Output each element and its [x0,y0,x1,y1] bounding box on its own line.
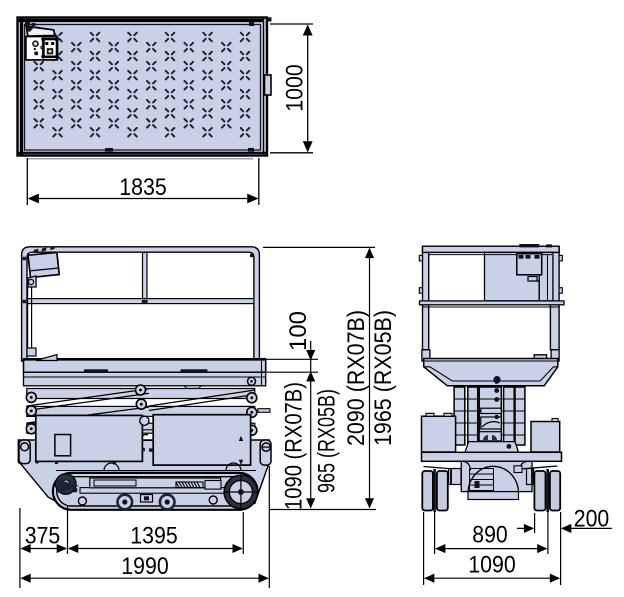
svg-text:890: 890 [472,522,508,549]
svg-text:965 (RX05B): 965 (RX05B) [314,389,341,493]
svg-text:1090: 1090 [468,552,516,579]
svg-text:1000: 1000 [282,64,309,112]
svg-text:375: 375 [25,523,61,550]
svg-text:200: 200 [574,505,610,532]
svg-text:1835: 1835 [119,174,167,201]
svg-text:1990: 1990 [121,553,169,580]
svg-text:1090 (RX07B): 1090 (RX07B) [281,382,308,510]
svg-text:1965 (RX05B): 1965 (RX05B) [370,310,397,446]
svg-text:100: 100 [285,311,312,351]
svg-text:1395: 1395 [130,523,178,550]
svg-text:2090 (RX07B): 2090 (RX07B) [343,310,370,446]
